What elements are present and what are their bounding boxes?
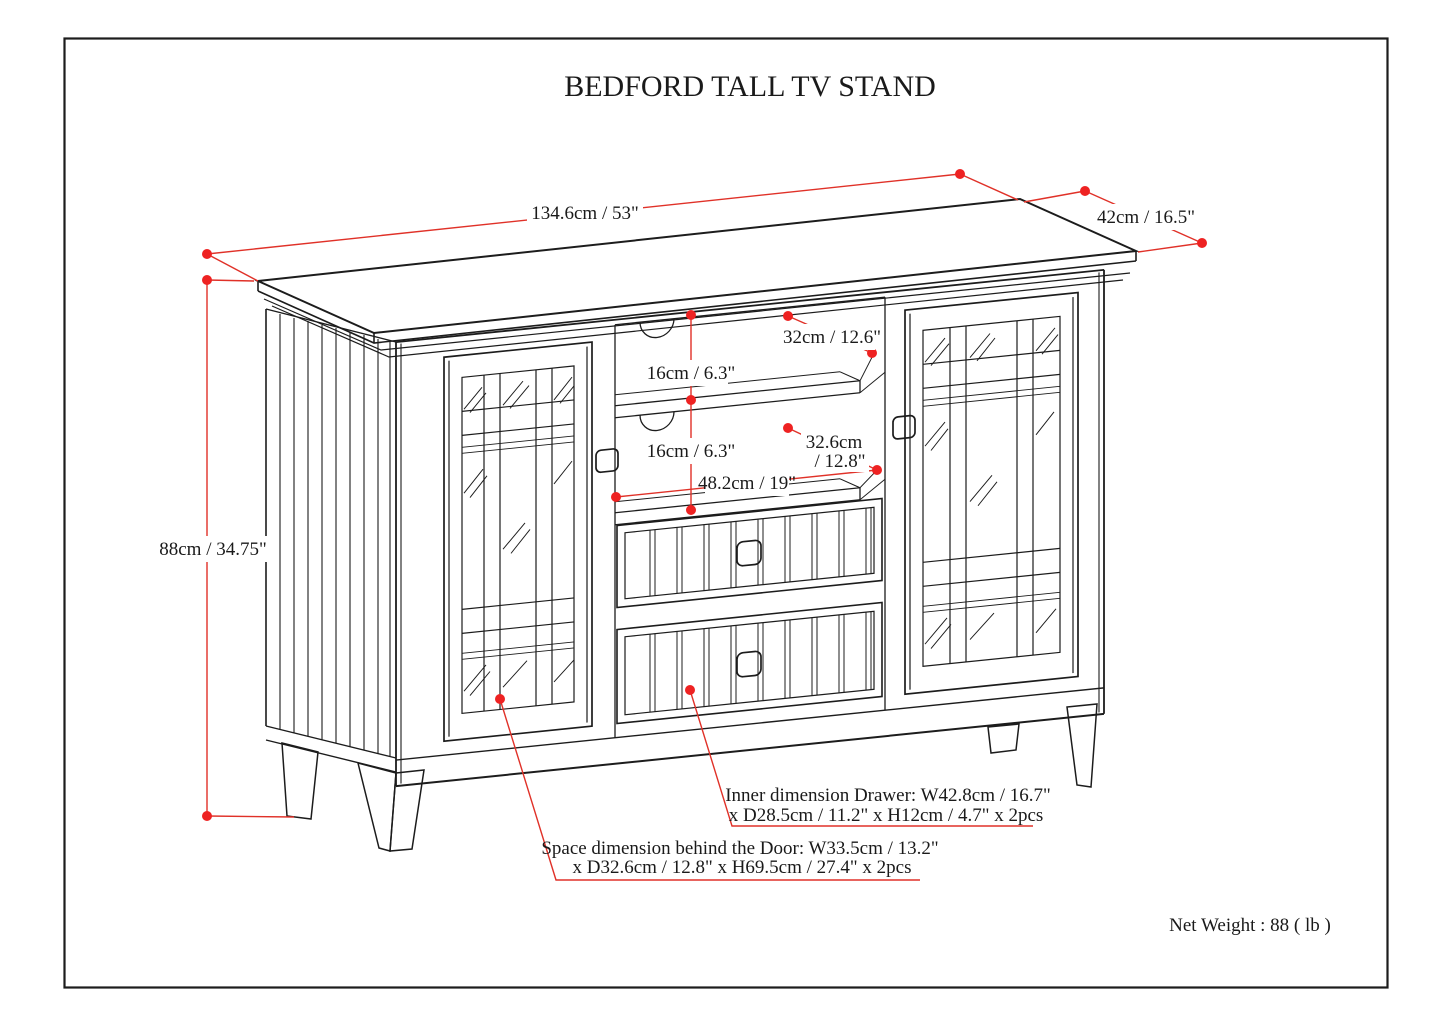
dimension-dots: [202, 169, 1207, 821]
left-glass-door: [444, 339, 618, 741]
door-annotation-line1: Space dimension behind the Door: W33.5cm…: [541, 838, 938, 859]
top-panel: [258, 199, 1136, 357]
glass-reflections: [464, 376, 574, 696]
right-glass-door: [893, 293, 1078, 696]
tv-stand-dimension-diagram: BEDFORD TALL TV STAND: [0, 0, 1445, 1022]
label-upper-shelf-depth: 32cm / 12.6": [783, 327, 881, 348]
page-title: BEDFORD TALL TV STAND: [564, 70, 936, 103]
tv-stand-drawing: [258, 199, 1136, 851]
drawing-page: BEDFORD TALL TV STAND: [0, 0, 1445, 1022]
left-side-panel: [266, 309, 396, 772]
right-door-knob: [893, 415, 915, 439]
net-weight-label: Net Weight : 88 ( lb ): [1169, 915, 1331, 936]
drawer-annotation-line2: x D28.5cm / 11.2" x H12cm / 4.7" x 2pcs: [729, 805, 1044, 826]
annotations: Inner dimension Drawer: W42.8cm / 16.7" …: [541, 785, 1331, 936]
label-overall-depth: 42cm / 16.5": [1097, 207, 1195, 228]
top-drawer: [617, 499, 882, 608]
label-overall-width: 134.6cm / 53": [531, 203, 639, 224]
door-annotation-line2: x D32.6cm / 12.8" x H69.5cm / 27.4" x 2p…: [572, 857, 911, 878]
front-face: [396, 270, 1104, 786]
label-lower-shelf-depth-1: 32.6cm: [806, 432, 863, 453]
label-center-opening-width: 48.2cm / 19": [698, 473, 796, 494]
back-right-leg: [988, 724, 1019, 753]
top-drawer-knob: [737, 540, 761, 566]
interior-shelf-line: [923, 386, 1060, 400]
bottom-drawer: [617, 603, 882, 724]
back-left-leg: [282, 743, 318, 819]
drawer-annotation-line1: Inner dimension Drawer: W42.8cm / 16.7": [725, 785, 1051, 806]
label-upper-shelf-gap: 16cm / 6.3": [647, 363, 736, 384]
label-lower-shelf-depth-2: / 12.8": [814, 451, 865, 472]
label-lower-shelf-gap: 16cm / 6.3": [647, 441, 736, 462]
bottom-drawer-knob: [737, 651, 761, 677]
label-overall-height: 88cm / 34.75": [159, 539, 267, 560]
interior-shelf-line: [462, 436, 574, 447]
